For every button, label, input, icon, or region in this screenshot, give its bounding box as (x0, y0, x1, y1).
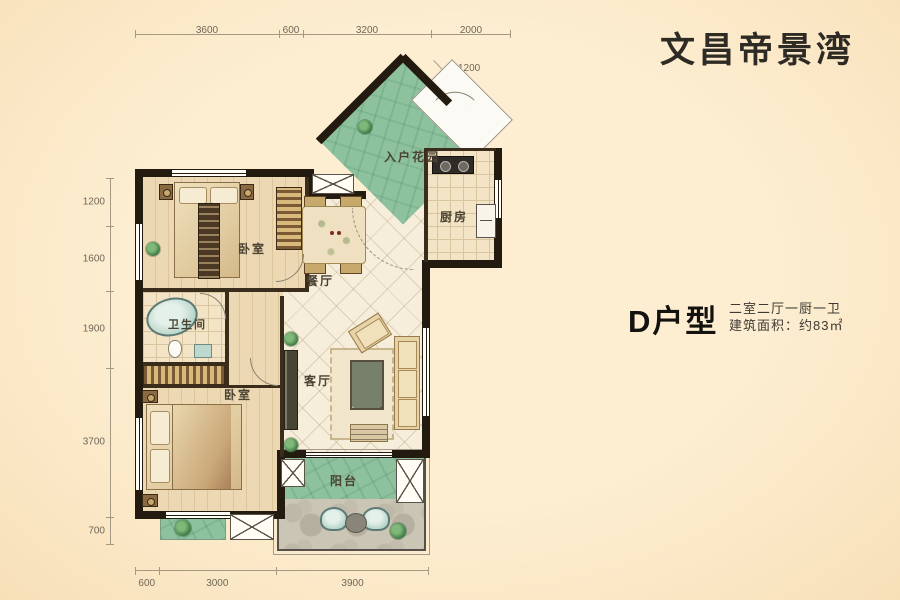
wall (392, 450, 430, 458)
dim-value: 3200 (356, 25, 378, 36)
fridge-handle (480, 220, 492, 221)
ac-unit-box (281, 459, 305, 487)
dim-value: 2000 (460, 25, 482, 36)
dimension-rail-bottom: 600 3000 3900 (135, 570, 429, 585)
dim-value: 3700 (83, 437, 105, 448)
table-decor (337, 231, 341, 235)
dim-value: 3000 (206, 578, 228, 589)
room-label-entry-garden: 入户花园 (362, 148, 462, 165)
dim-value: 3900 (341, 578, 363, 589)
flower-bed-plant (175, 520, 191, 536)
sofa-cushion (398, 399, 417, 427)
project-title: 文昌帝景湾 (660, 22, 855, 73)
dim-segment: 600 (135, 571, 159, 585)
side-table (350, 424, 388, 442)
ac-unit-box (230, 514, 274, 540)
room-label-bedroom-bottom: 卧室 (224, 386, 252, 403)
balcony-sliding-door (306, 452, 392, 458)
coffee-table (350, 360, 384, 410)
nightstand (142, 390, 158, 403)
dim-value: 1900 (83, 324, 105, 335)
balcony-chair (320, 507, 348, 531)
dim-segment: 2000 (431, 20, 511, 34)
dim-value: 3600 (196, 25, 218, 36)
bed-double (174, 182, 240, 278)
pillow (179, 187, 207, 204)
sofa-cushion (398, 370, 417, 398)
dim-value: 600 (283, 25, 300, 36)
wardrobe-top (276, 187, 302, 250)
dim-segment: 3200 (303, 20, 431, 34)
balcony-table (345, 513, 367, 533)
pillow (150, 411, 170, 445)
room-label-dining: 餐厅 (306, 272, 334, 289)
balcony-plant (390, 523, 406, 539)
dim-segment: 700 (80, 517, 110, 545)
dim-value: 1200 (83, 197, 105, 208)
dim-value: 600 (138, 578, 155, 589)
window (135, 418, 143, 490)
room-label-balcony: 阳台 (330, 472, 358, 489)
dim-segment: 600 (279, 20, 303, 34)
room-label-bedroom-top: 卧室 (238, 240, 266, 257)
wall (422, 260, 430, 304)
plant (146, 242, 160, 256)
nightstand (240, 184, 254, 200)
room-label-kitchen: 厨房 (440, 208, 468, 225)
table-decor (330, 231, 334, 235)
floorplan-flyer: 文昌帝景湾 D户型 二室二厅一厨一卫 建筑面积：约83㎡ 3600 600 32… (0, 0, 900, 600)
room-label-bathroom: 卫生间 (168, 316, 207, 332)
sink (194, 344, 212, 358)
partition (143, 362, 227, 365)
dim-segment: 3600 (135, 20, 279, 34)
dim-segment: 3700 (80, 368, 110, 517)
dimension-rail-left: 1200 1600 1900 3700 700 (80, 178, 111, 545)
toilet (168, 340, 182, 358)
dim-value: 1600 (83, 253, 105, 264)
bed-runner (198, 203, 220, 279)
nightstand (142, 494, 158, 507)
window (422, 328, 430, 416)
tv-cabinet (284, 350, 298, 430)
dim-segment: 1200 (80, 178, 110, 226)
sofa-cushion (398, 341, 417, 369)
fridge (476, 204, 496, 238)
unit-area-text: 建筑面积：约83㎡ (729, 317, 843, 334)
unit-type-label: D户型 (628, 296, 718, 341)
ac-unit-box (396, 459, 424, 503)
dim-segment: 1600 (80, 226, 110, 291)
plant (284, 438, 298, 452)
partition (143, 385, 283, 388)
plant (284, 332, 298, 346)
window (172, 169, 246, 177)
dimension-rail-top: 3600 600 3200 2000 (135, 20, 511, 35)
dim-segment: 1900 (80, 291, 110, 368)
pillow (210, 187, 238, 204)
duvet (172, 405, 231, 489)
wall (424, 260, 502, 268)
unit-description: 二室二厅一厨一卫 建筑面积：约83㎡ (729, 300, 843, 334)
dim-value: 700 (88, 525, 105, 536)
unit-layout-text: 二室二厅一厨一卫 (729, 300, 843, 317)
dim-segment: 3900 (276, 571, 429, 585)
ac-unit-box (312, 174, 354, 194)
nightstand (159, 184, 173, 200)
partition (424, 148, 428, 262)
wardrobe-bottom (143, 365, 225, 385)
garden-plant (358, 120, 372, 134)
bed-double (146, 404, 242, 490)
partition (225, 292, 229, 385)
room-label-living: 客厅 (304, 372, 332, 389)
window (166, 511, 230, 519)
dim-segment: 3000 (159, 571, 277, 585)
window (135, 224, 143, 280)
sofa (394, 336, 420, 430)
pillow (150, 449, 170, 483)
